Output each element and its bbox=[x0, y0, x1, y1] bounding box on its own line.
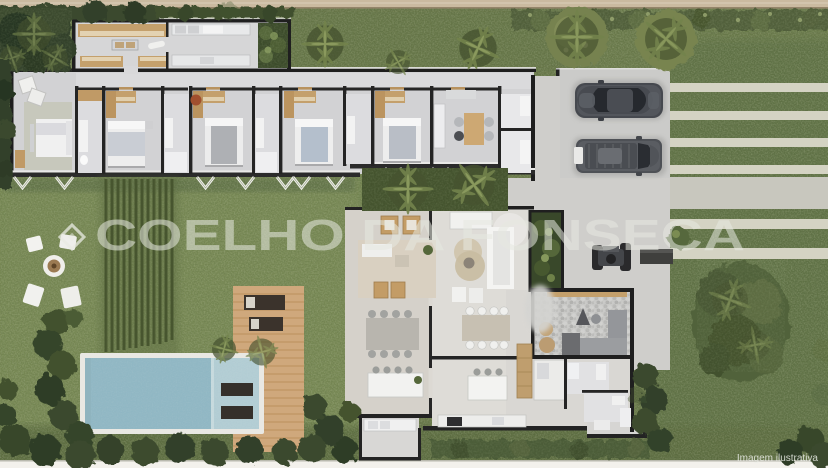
svg-text:COELHO DA FONSECA: COELHO DA FONSECA bbox=[95, 211, 745, 260]
svg-text:Imagem ilustrativa: Imagem ilustrativa bbox=[737, 453, 819, 464]
